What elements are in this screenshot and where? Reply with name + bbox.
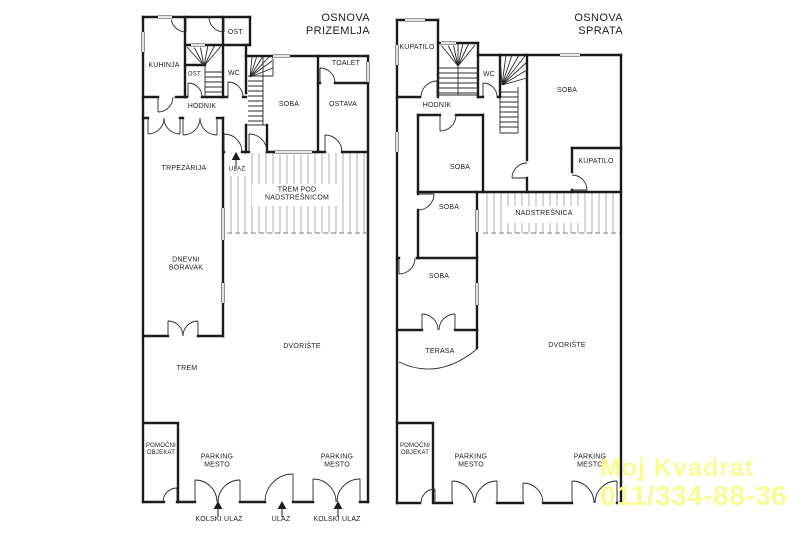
room-label-ground-kolski1: KOLSKI ULAZ xyxy=(195,516,242,524)
doors xyxy=(148,17,617,503)
watermark-phone: 011/334-88-36 xyxy=(600,482,787,511)
room-label-ground-parking2: PARKING MESTO xyxy=(321,454,353,471)
room-label-upper-kupatilo1: KUPATILO xyxy=(399,44,434,52)
room-label-ground-ostava: OSTAVA xyxy=(329,101,357,109)
room-label-upper-wc: WC xyxy=(483,71,495,79)
ground-plan-title: OSNOVA PRIZEMLJA xyxy=(270,12,370,38)
room-label-ground-ulaz: ULAZ xyxy=(229,166,245,173)
room-label-ground-ost_small: OST. xyxy=(188,71,202,78)
room-label-upper-pomocni: POMOĆNI OBJEKAT xyxy=(400,443,430,457)
room-label-ground-wc: WC xyxy=(228,70,240,78)
room-label-ground-ost_top: OST. xyxy=(228,29,244,37)
watermark-brand: Moj Kvadrat xyxy=(600,456,787,482)
room-label-ground-trem: TREM xyxy=(177,365,198,373)
room-label-upper-hodnik: HODNIK xyxy=(423,102,451,110)
room-label-upper-soba1: SOBA xyxy=(450,164,470,172)
room-label-upper-dvoriste: DVORIŠTE xyxy=(548,342,585,350)
room-label-ground-parking1: PARKING MESTO xyxy=(201,454,233,471)
upper-plan-title: OSNOVA SPRATA xyxy=(523,12,623,38)
floorplan-page: OSNOVA PRIZEMLJA OSNOVA SPRATA OST.KUHIN… xyxy=(0,0,800,533)
room-label-ground-dnevni: DNEVNI BORAVAK xyxy=(169,257,203,274)
watermark: Moj Kvadrat 011/334-88-36 xyxy=(600,456,787,510)
room-label-ground-trem_pod: TREM POD NADSTREŠNICOM xyxy=(262,186,332,205)
room-label-ground-kolski2: KOLSKI ULAZ xyxy=(313,516,360,524)
room-label-ground-hodnik: HODNIK xyxy=(188,103,216,111)
room-label-upper-soba_big: SOBA xyxy=(557,87,577,95)
windows xyxy=(140,14,580,305)
room-label-upper-soba3: SOBA xyxy=(429,273,449,281)
room-label-ground-trpezarija: TRPEZARIJA xyxy=(162,165,207,173)
room-label-upper-nadstresnica: NADSTREŠNICA xyxy=(512,209,575,219)
room-label-upper-soba2: SOBA xyxy=(439,204,459,212)
room-label-ground-ulaz_gate: ULAZ xyxy=(272,516,291,524)
room-label-upper-parking1: PARKING MESTO xyxy=(455,454,487,471)
room-label-ground-pomocni: POMOĆNI OBJEKAT xyxy=(146,443,176,457)
room-label-ground-toalet: TOALET xyxy=(332,60,360,68)
room-label-upper-terasa: TERASA xyxy=(425,348,454,356)
room-label-ground-dvoriste: DVORIŠTE xyxy=(283,343,320,351)
room-label-ground-kuhinja: KUHINJA xyxy=(148,62,179,70)
room-label-ground-soba: SOBA xyxy=(279,101,299,109)
room-label-upper-kupatilo2: KUPATILO xyxy=(578,158,613,166)
